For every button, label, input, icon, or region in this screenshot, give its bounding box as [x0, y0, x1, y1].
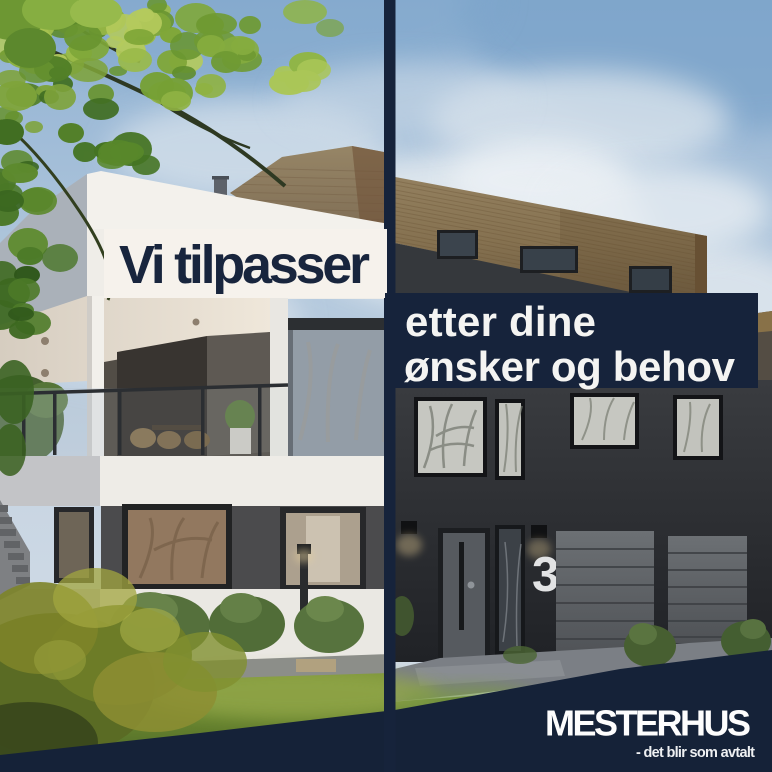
svg-text:MESTERHUS: MESTERHUS [545, 703, 751, 744]
svg-text:Vi tilpasser: Vi tilpasser [119, 235, 370, 295]
svg-text:etter dine: etter dine [405, 298, 596, 345]
svg-text:3: 3 [532, 548, 559, 602]
svg-text:ønsker og behov: ønsker og behov [404, 343, 736, 390]
svg-text:- det blir som avtalt: - det blir som avtalt [636, 745, 755, 761]
